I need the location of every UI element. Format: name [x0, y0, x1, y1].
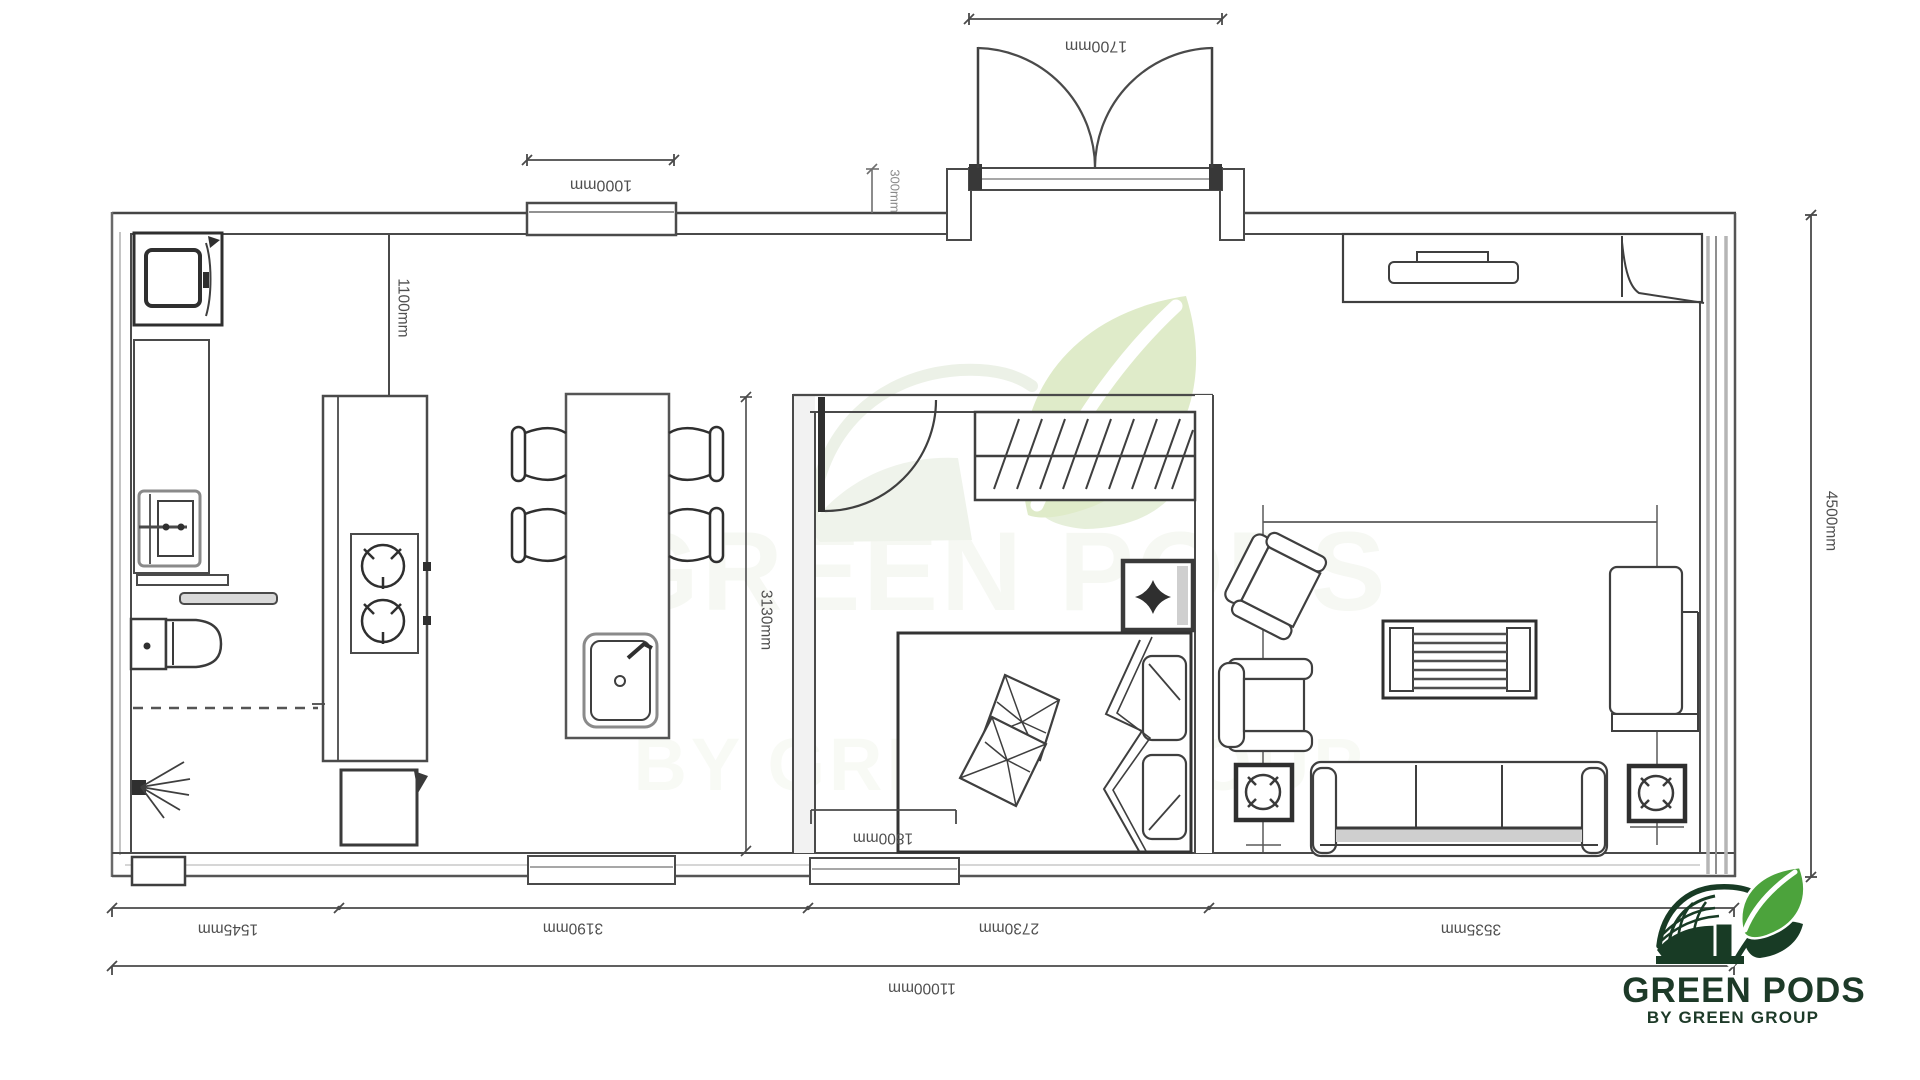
- svg-text:300mm: 300mm: [888, 169, 903, 212]
- svg-text:1000mm: 1000mm: [570, 177, 632, 194]
- svg-text:4500mm: 4500mm: [1823, 491, 1840, 551]
- svg-text:1545mm: 1545mm: [198, 921, 258, 938]
- svg-text:1100mm: 1100mm: [395, 278, 412, 337]
- svg-text:1800mm: 1800mm: [853, 830, 913, 847]
- svg-text:GREEN PODS: GREEN PODS: [1622, 971, 1865, 1010]
- svg-text:BY GREEN GROUP: BY GREEN GROUP: [1647, 1008, 1819, 1027]
- svg-text:3130mm: 3130mm: [758, 590, 775, 650]
- svg-text:1700mm: 1700mm: [1065, 38, 1127, 55]
- svg-text:3190mm: 3190mm: [543, 920, 603, 937]
- svg-text:3535mm: 3535mm: [1441, 921, 1501, 938]
- svg-text:11000mm: 11000mm: [888, 980, 956, 997]
- svg-text:2730mm: 2730mm: [979, 920, 1039, 937]
